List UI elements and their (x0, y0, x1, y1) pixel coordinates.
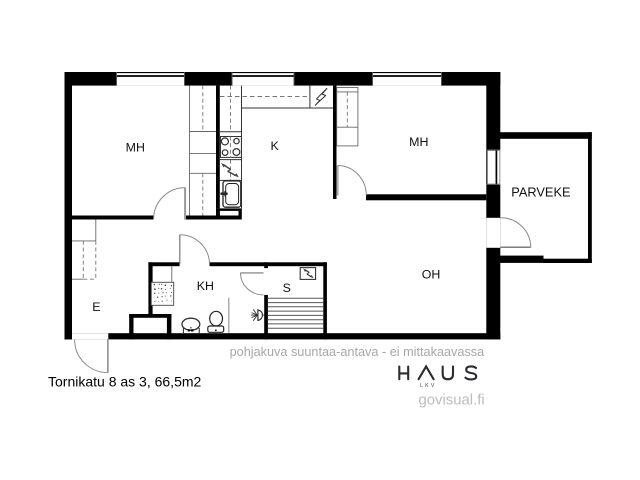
svg-text:K: K (270, 139, 279, 153)
svg-text:S: S (283, 281, 291, 295)
svg-text:MH: MH (126, 141, 145, 155)
svg-text:govisual.fi: govisual.fi (418, 393, 484, 409)
svg-text:KH: KH (197, 279, 214, 293)
svg-text:MH: MH (409, 135, 428, 149)
svg-text:OH: OH (422, 267, 441, 281)
svg-text:PARVEKE: PARVEKE (511, 185, 570, 200)
svg-text:Tornikatu 8 as 3, 66,5m2: Tornikatu 8 as 3, 66,5m2 (48, 373, 202, 389)
svg-text:E: E (92, 300, 100, 314)
svg-text:pohjakuva suuntaa-antava - ei: pohjakuva suuntaa-antava - ei mittakaava… (230, 345, 486, 359)
svg-text:LKV: LKV (420, 383, 436, 389)
